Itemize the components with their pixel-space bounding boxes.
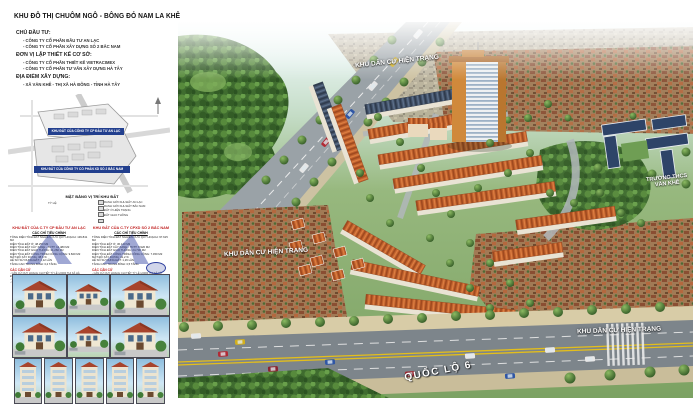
townhouse-thumbnail xyxy=(75,358,104,404)
designer-heading: ĐƠN VỊ LẬP THIẾT KẾ CƠ SỞ: xyxy=(16,52,174,58)
aerial-rendering xyxy=(178,22,693,398)
investor-line: - CÔNG TY CỔ PHẦN ĐẦU TƯ AN LẠC xyxy=(23,38,174,43)
villa-thumbnail xyxy=(12,274,67,316)
villa-thumbnail xyxy=(110,316,170,358)
site-plan-legend: RANH GIỚI KHU ĐẤT AN LẠC RANH GIỚI KHU Đ… xyxy=(104,200,145,217)
location-line: - XÃ VĂN KHÊ - THỊ XÃ HÀ ĐÔNG - TỈNH HÀ … xyxy=(23,82,174,87)
poster-title: KHU ĐÔ THỊ CHUÔM NGÔ - BÔNG ĐỎ NAM LA KH… xyxy=(14,11,155,20)
investor-heading: CHỦ ĐẦU TƯ: xyxy=(16,30,174,36)
townhouse-thumbnail xyxy=(14,358,42,404)
villa-thumbnail xyxy=(67,316,110,358)
townhouse-thumbnail xyxy=(44,358,73,404)
designer-line: - CÔNG TY CỔ PHẦN TƯ VẤN XÂY DỰNG HÀ TÂY xyxy=(23,66,174,71)
existing-village-west xyxy=(182,205,348,336)
townhouse-thumbnail xyxy=(136,358,165,404)
site-location-plan: KHU ĐẤT CỦA CÔNG TY CP ĐẦU TƯ AN LẠC KHU… xyxy=(8,94,170,222)
poster: KHU ĐÔ THỊ CHUÔM NGÔ - BÔNG ĐỎ NAM LA KH… xyxy=(0,0,700,420)
site-plan-drawing xyxy=(8,94,170,222)
villa-thumbnail xyxy=(67,274,110,316)
designer-line: - CÔNG TY CỔ PHẦN THIẾT KẾ VIETRACIMEX xyxy=(23,60,174,65)
stats-bacnam-heading: KHU ĐẤT CỦA C.TY CPXD SỐ 2 BẮC NAM xyxy=(92,226,170,230)
stats-anlac-rows: TỔNG DIỆN TÍCH ĐẤT NGHIÊN CỨU QUY HOẠCH:… xyxy=(10,236,88,266)
site-banner-bacnam: KHU ĐẤT CỦA CÔNG TY CỔ PHẦN XD SỐ 2 BẮC … xyxy=(34,166,130,173)
blue-stamp xyxy=(146,262,166,274)
project-info: CHỦ ĐẦU TƯ: - CÔNG TY CỔ PHẦN ĐẦU TƯ AN … xyxy=(16,27,174,87)
location-heading: ĐỊA ĐIỂM XÂY DỰNG: xyxy=(16,74,174,80)
site-plan-caption: MẶT BẰNG VỊ TRÍ KHU ĐẤT xyxy=(42,194,142,199)
site-plan-scale: TỶ LỆ: xyxy=(48,201,57,205)
villa-thumbnail xyxy=(12,316,67,358)
stats-anlac-heading: KHU ĐẤT CỦA C.TY CP ĐẦU TƯ AN LẠC xyxy=(10,226,88,230)
investor-line: - CÔNG TY CỔ PHẦN XÂY DỰNG SỐ 2 BẮC NAM xyxy=(23,44,174,49)
villa-thumbnail xyxy=(110,274,170,316)
site-banner-anlac: KHU ĐẤT CỦA CÔNG TY CP ĐẦU TƯ AN LẠC xyxy=(48,128,124,135)
townhouse-thumbnail xyxy=(106,358,134,404)
haze-overlay xyxy=(178,22,693,80)
